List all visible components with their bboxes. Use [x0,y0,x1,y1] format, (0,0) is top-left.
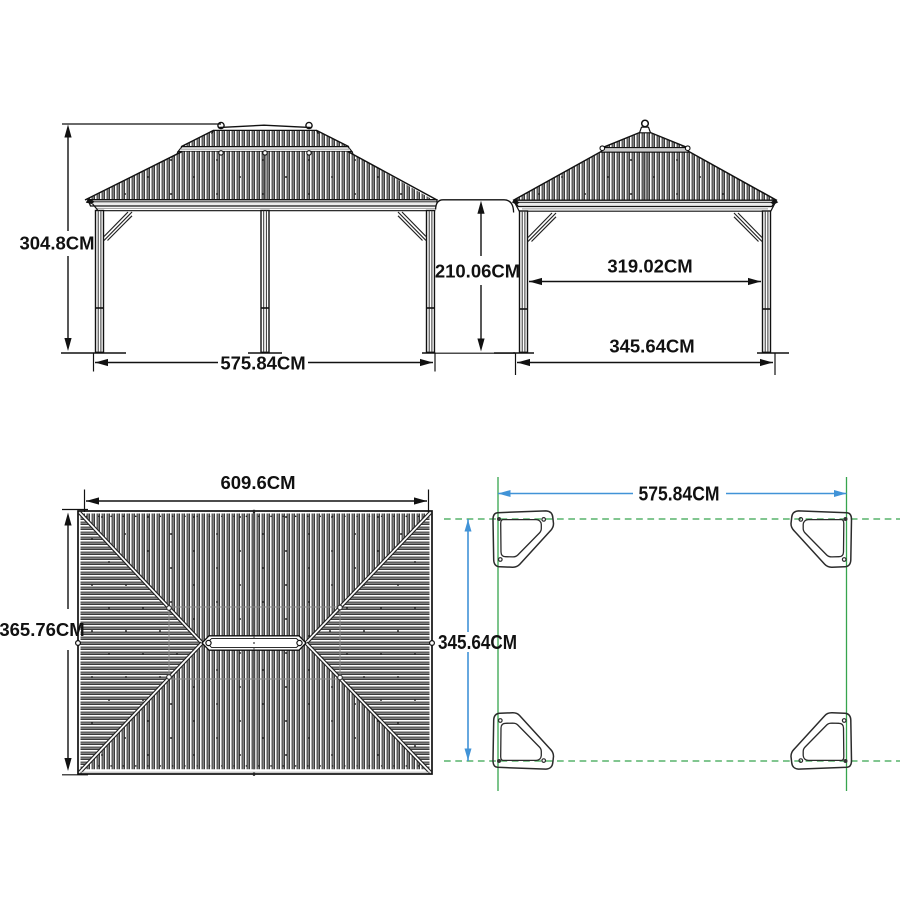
svg-text:575.84CM: 575.84CM [639,484,720,506]
svg-text:319.02CM: 319.02CM [607,256,692,277]
svg-text:345.64CM: 345.64CM [609,336,694,357]
svg-text:365.76CM: 365.76CM [0,619,85,640]
svg-text:575.84CM: 575.84CM [220,353,305,374]
svg-text:210.06CM: 210.06CM [435,261,520,282]
svg-text:609.6CM: 609.6CM [220,472,295,493]
svg-text:304.8CM: 304.8CM [19,233,94,254]
svg-text:345.64CM: 345.64CM [438,632,517,654]
